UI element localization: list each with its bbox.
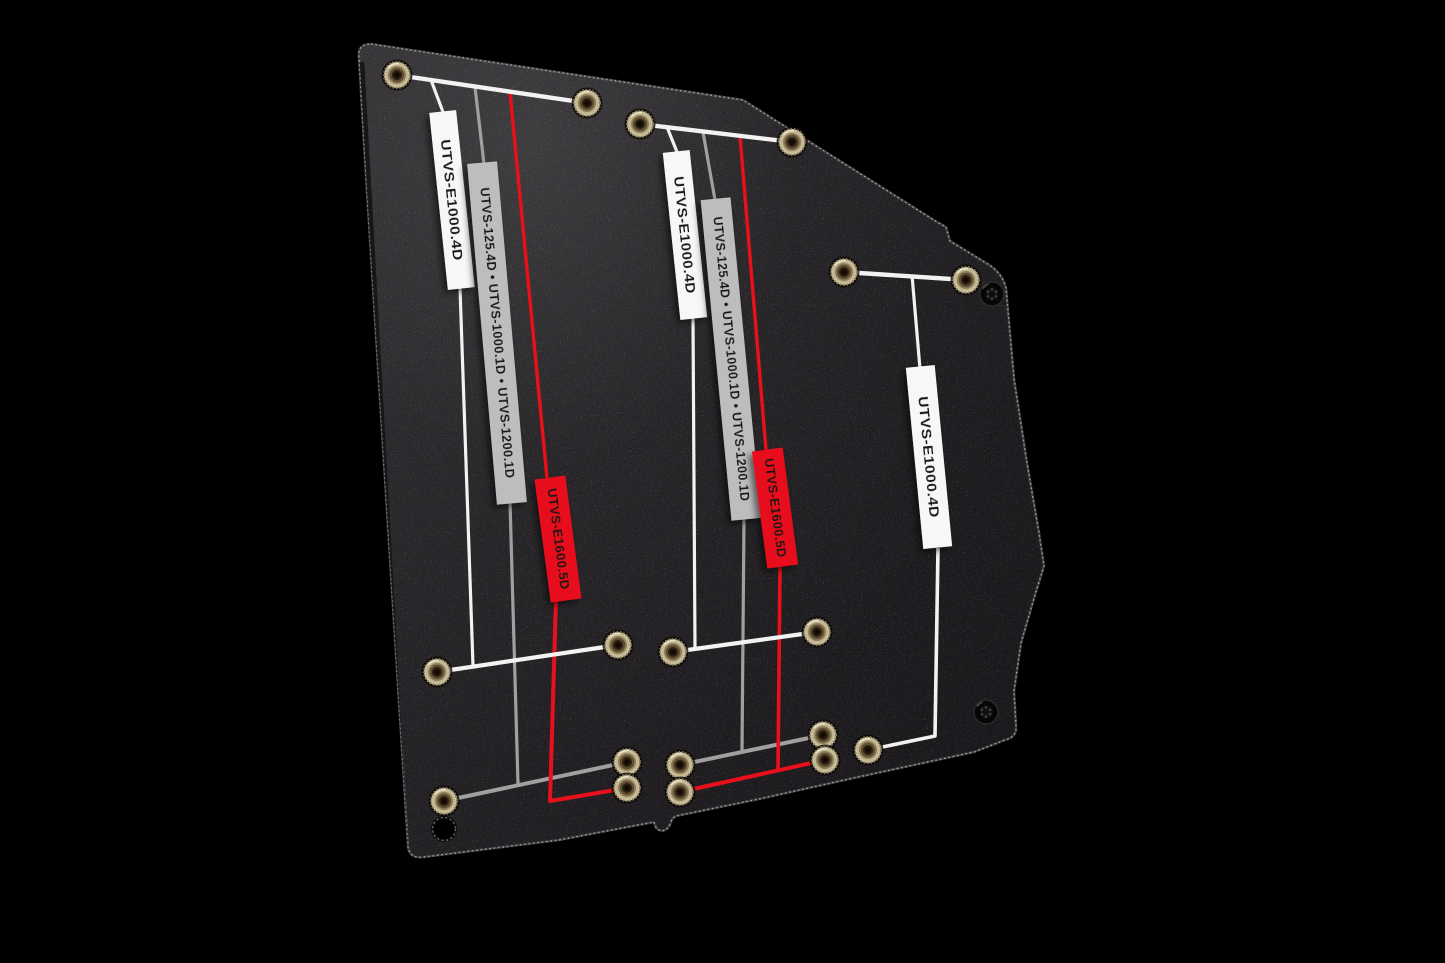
rivet-nut [422, 657, 453, 688]
rivet-nut [572, 88, 603, 119]
rivet-nut [665, 750, 696, 781]
rivet-nut [951, 265, 982, 296]
through-hole [431, 816, 457, 842]
amp-mounting-plate-diagram: UTVS-E1000.4D UTVS-125.4D • UTVS-1000.1D… [0, 0, 1445, 963]
rivet-nut [802, 617, 833, 648]
rivet-nut [665, 777, 696, 808]
torx-screw [974, 700, 998, 724]
rivet-nut [429, 786, 460, 817]
rivet-nut [658, 637, 689, 668]
rivet-nut [612, 773, 643, 804]
rivet-nut [810, 745, 841, 776]
torx-screw [980, 282, 1004, 306]
product-image: UTVS-E1000.4D UTVS-125.4D • UTVS-1000.1D… [0, 0, 1445, 963]
rivet-nut [382, 60, 413, 91]
rivet-nut [853, 735, 884, 766]
rivet-nut [603, 630, 634, 661]
rivet-nut [625, 109, 656, 140]
rivet-nut [777, 127, 808, 158]
rivet-nut [829, 257, 860, 288]
